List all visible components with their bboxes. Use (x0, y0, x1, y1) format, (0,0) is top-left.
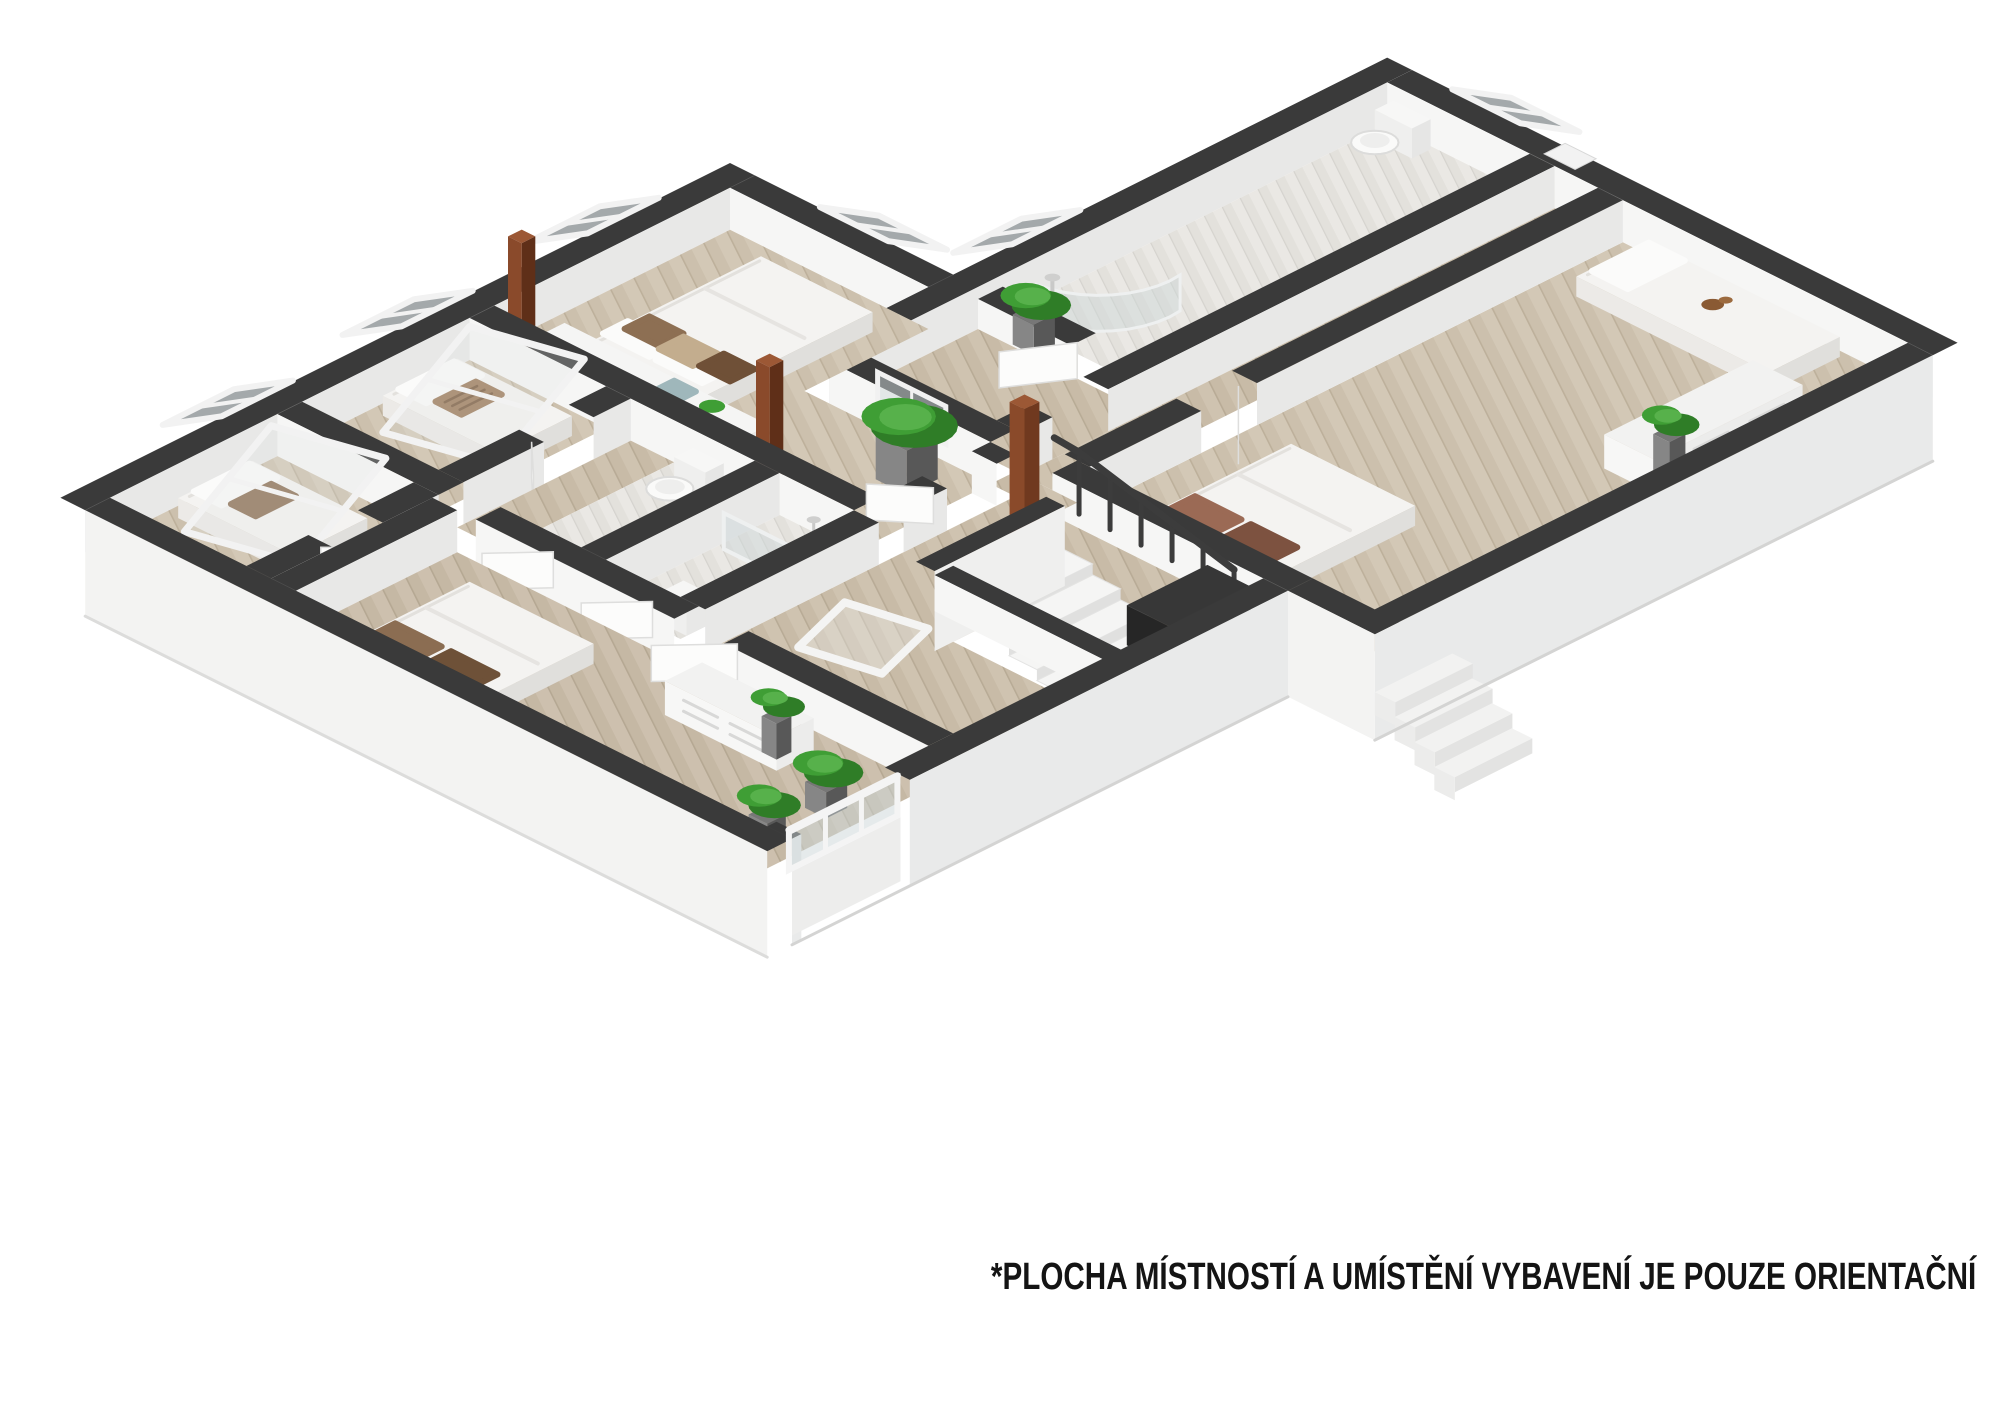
disclaimer-text: *PLOCHA MÍSTNOSTÍ A UMÍSTĚNÍ VYBAVENÍ JE… (991, 1256, 1976, 1299)
door-leaf (866, 484, 933, 524)
floorplan-page: { "image_type": "3d-isometric-floor-plan… (0, 0, 2000, 1414)
floorplan-rendering (0, 0, 2000, 1414)
partition-wall (972, 442, 1015, 506)
